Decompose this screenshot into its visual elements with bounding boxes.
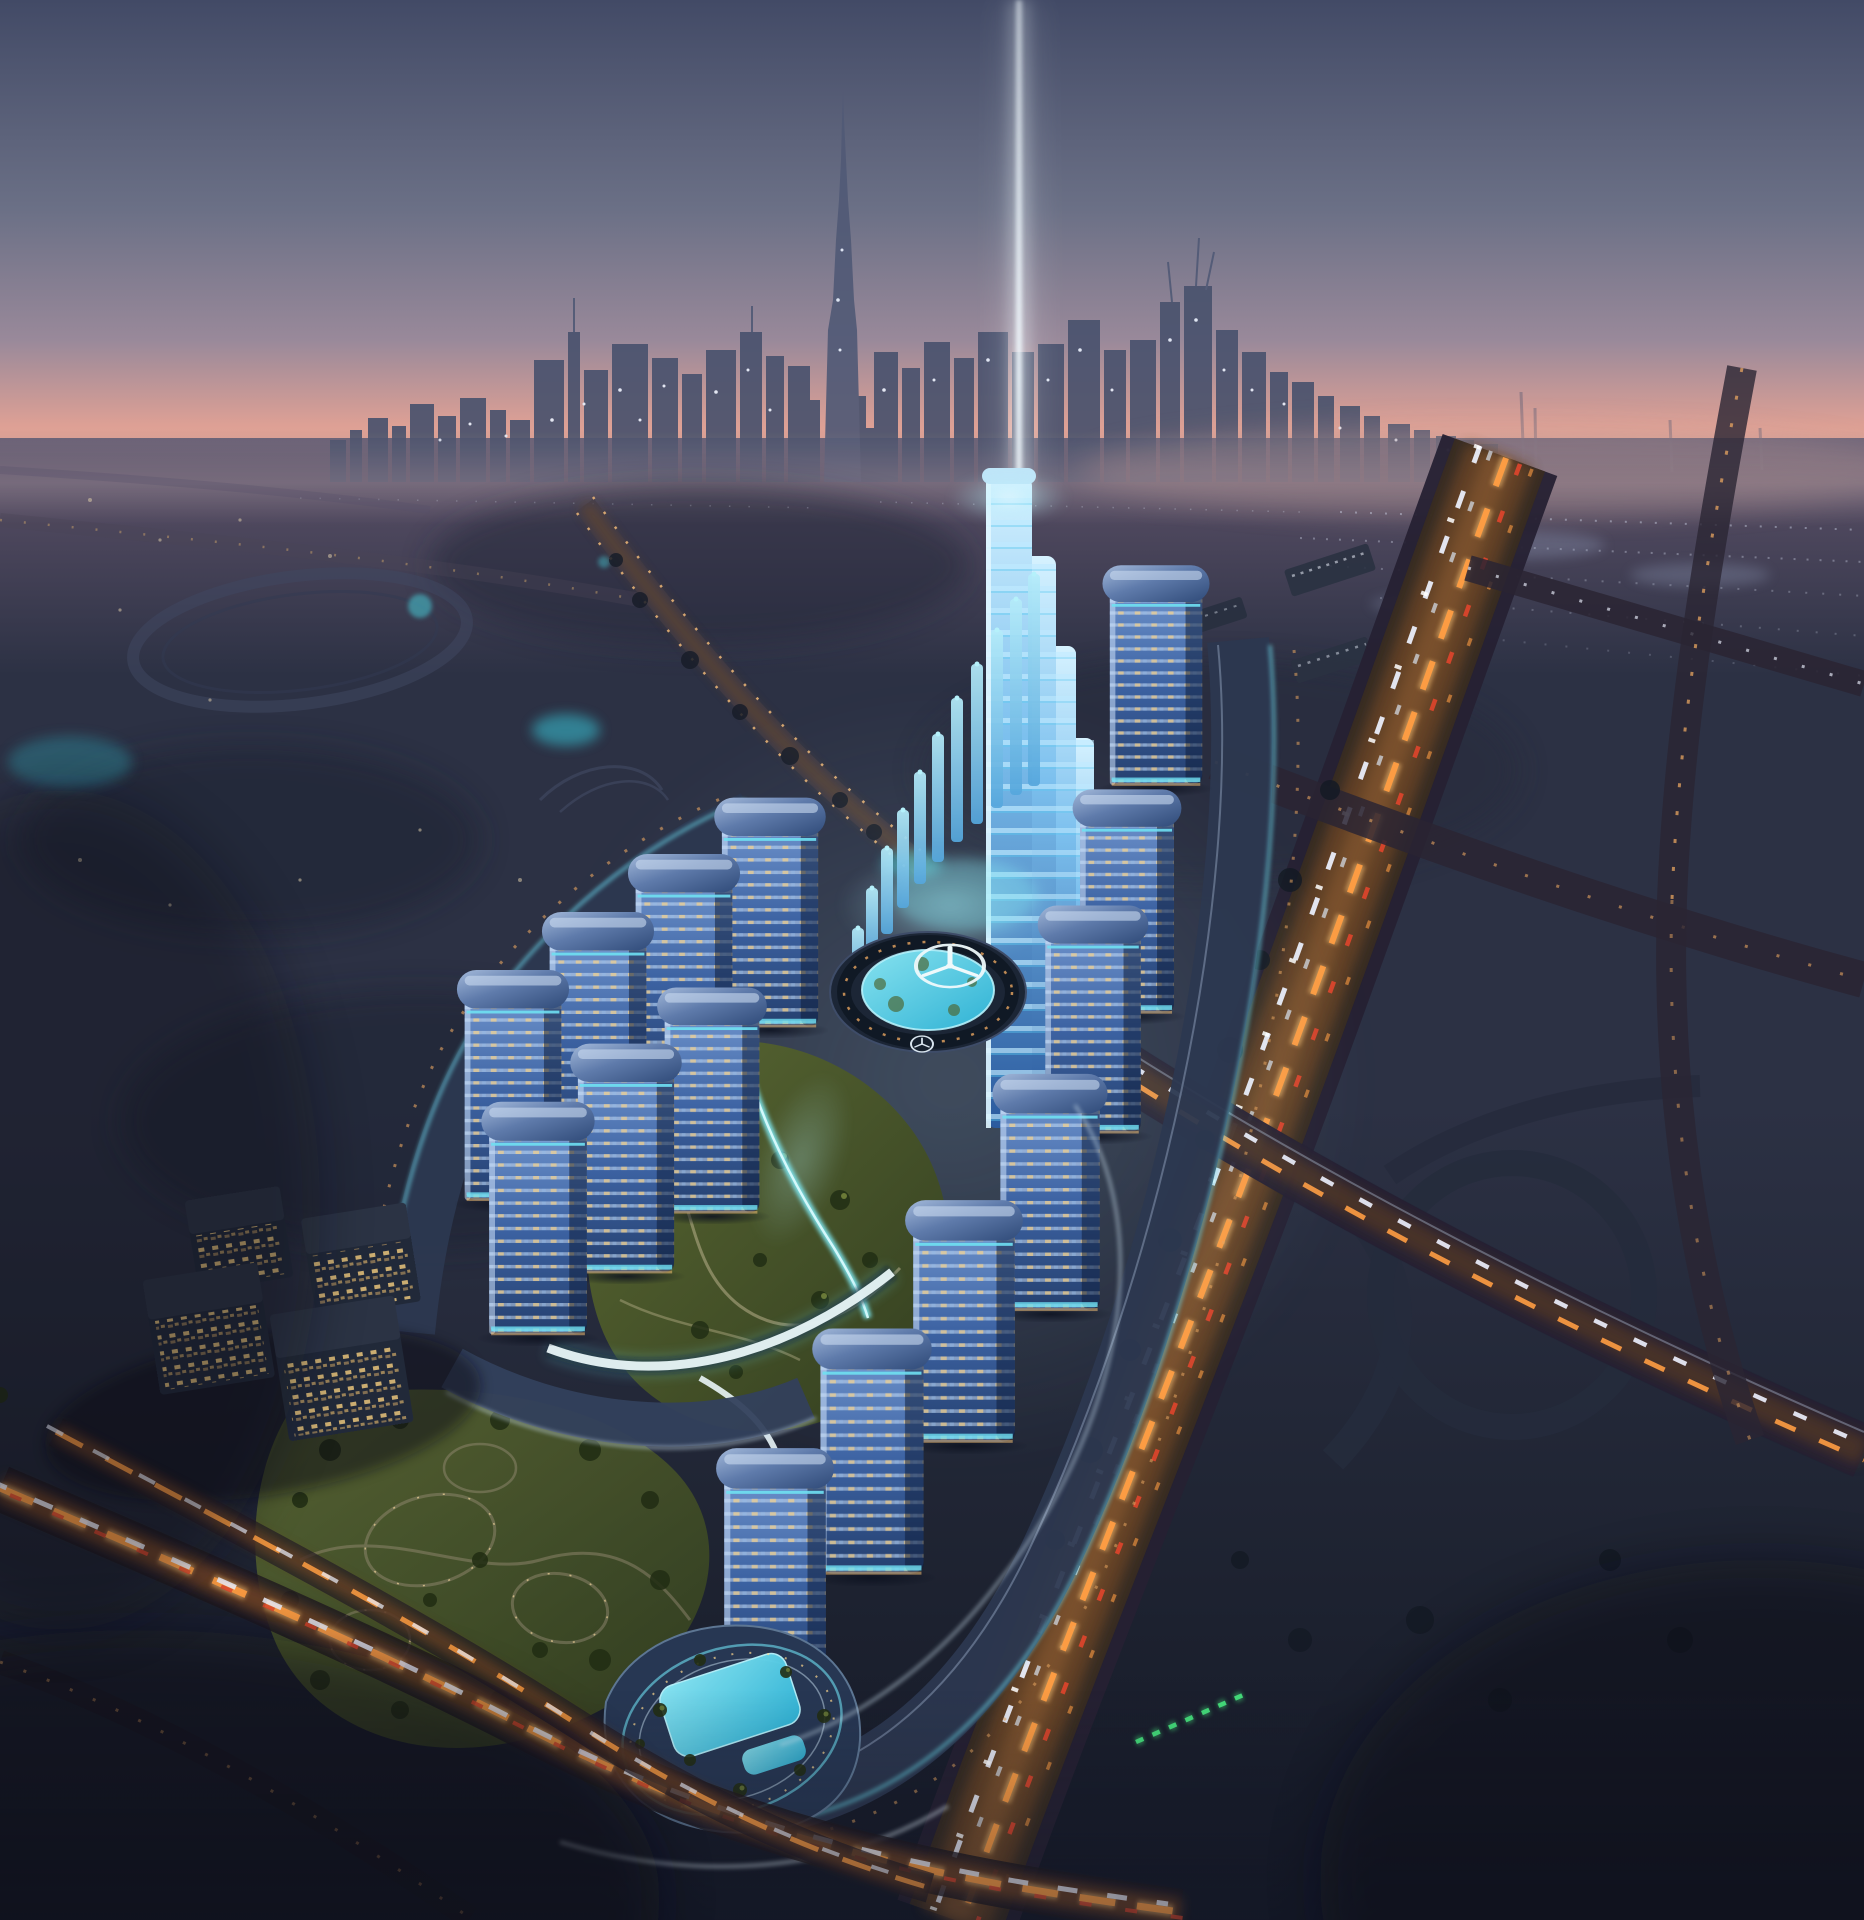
teal-pond: [408, 594, 432, 618]
mercedes-badge-icon: [911, 1036, 933, 1052]
scene-canvas: Aerial dusk rendering of an illuminated …: [0, 0, 1864, 1920]
architectural-rendering: Aerial dusk rendering of an illuminated …: [0, 0, 1864, 1920]
spire-top-glow: [949, 474, 1069, 522]
teal-pond: [598, 556, 610, 568]
teal-pond: [532, 714, 600, 746]
helipad-podium: [830, 932, 1026, 1052]
residential-tower: [1099, 565, 1213, 797]
residential-tower: [477, 1102, 598, 1347]
light-beam: [998, 0, 1042, 505]
teal-pond: [8, 736, 132, 788]
